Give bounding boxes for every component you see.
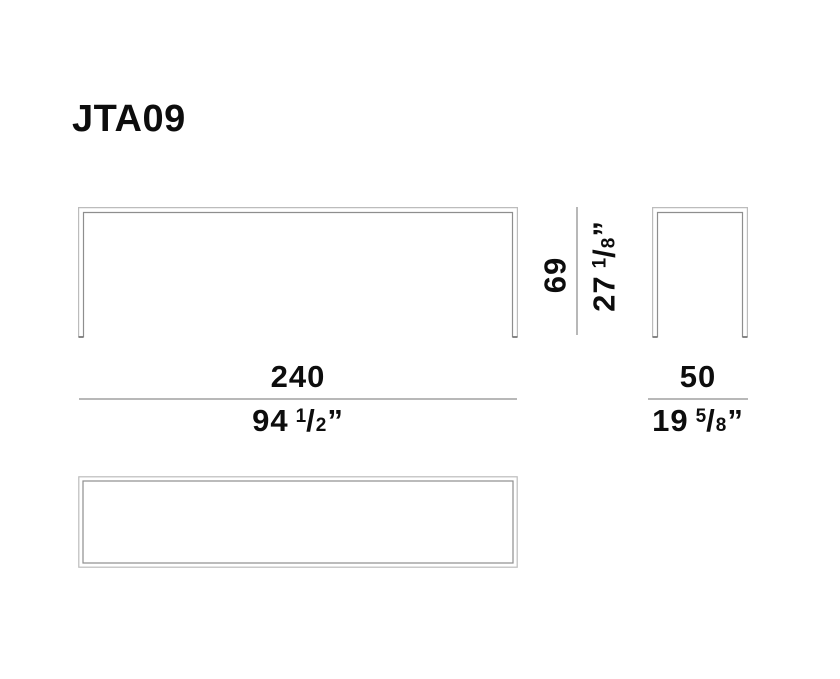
height-cm-label: 69 xyxy=(540,257,571,293)
product-code-title: JTA09 xyxy=(72,99,186,141)
side-view-drawing xyxy=(652,206,748,338)
plan-outer-edge xyxy=(79,477,517,567)
front-outer-contour xyxy=(79,208,518,338)
fraction-slash: / xyxy=(587,248,622,258)
height-cm-value: 69 xyxy=(538,257,573,293)
depth-inch-numerator: 5 xyxy=(696,406,707,427)
width-cm-label: 240 xyxy=(79,361,517,392)
width-inch-whole: 94 xyxy=(252,403,288,438)
depth-inch-label: 195/8” xyxy=(598,405,798,436)
front-view-drawing xyxy=(78,206,518,338)
plan-inner-edge xyxy=(83,481,513,563)
height-dimension-line xyxy=(576,207,578,335)
width-inch-numerator: 1 xyxy=(296,406,307,427)
technical-drawing-page: JTA09 240 941/2” 50 195/8” 69 271/8” xyxy=(0,0,840,679)
fraction-slash: / xyxy=(706,403,716,438)
fraction-slash: / xyxy=(306,403,316,438)
depth-inch-denominator: 8 xyxy=(716,415,727,436)
inch-mark: ” xyxy=(587,220,622,237)
depth-inch-whole: 19 xyxy=(652,403,688,438)
width-cm-value: 240 xyxy=(271,359,326,394)
front-inner-contour xyxy=(84,213,513,338)
height-inch-denominator: 8 xyxy=(599,238,620,249)
height-inch-label: 271/8” xyxy=(589,220,620,312)
inch-mark: ” xyxy=(727,403,744,438)
depth-cm-value: 50 xyxy=(680,359,716,394)
top-view-drawing xyxy=(78,476,518,568)
depth-cm-label: 50 xyxy=(598,361,798,392)
inch-mark: ” xyxy=(327,403,344,438)
height-inch-numerator: 1 xyxy=(590,258,611,269)
width-inch-denominator: 2 xyxy=(316,415,327,436)
width-dimension-line xyxy=(79,398,517,400)
height-inch-whole: 27 xyxy=(587,275,622,311)
side-inner-contour xyxy=(658,213,743,338)
width-inch-label: 941/2” xyxy=(79,405,517,436)
side-outer-contour xyxy=(653,208,748,338)
depth-dimension-line xyxy=(648,398,748,400)
